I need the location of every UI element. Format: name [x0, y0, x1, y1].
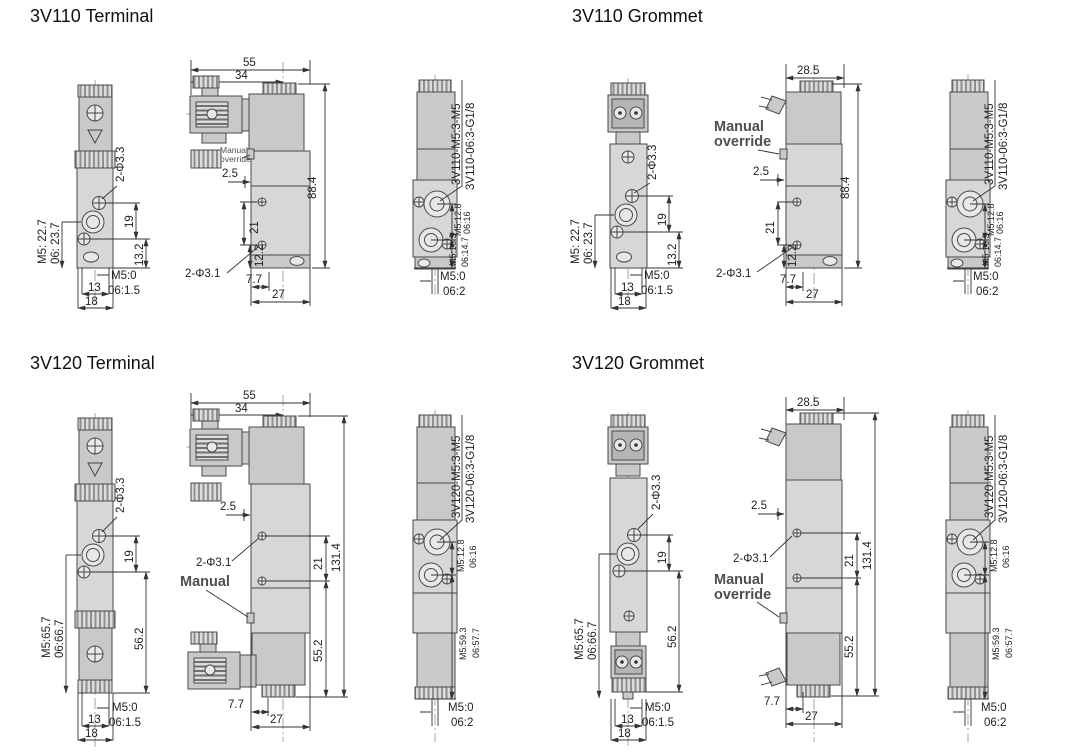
manual-override-button	[780, 613, 787, 623]
end-view-3v110-terminal: 3V110-M5:3-M5 3V110-06:3-G1/8 M5:12.8 06…	[413, 75, 477, 298]
dim-131-4: 131.4	[331, 543, 343, 572]
dim-2-5: 2.5	[751, 500, 767, 512]
override-label-2: override	[714, 134, 771, 150]
override-label-1: Manual	[180, 574, 230, 590]
dim-27: 27	[270, 714, 283, 726]
section-3v120-grommet: 3V120 Grommet 2-Φ3.3 19 56.2 M5:65.7 06:…	[572, 353, 1014, 748]
dim-12-2: 12.2	[254, 245, 266, 267]
dim-side-06: 06: 23.7	[583, 222, 595, 264]
front-view-3v120-grommet: 2-Φ3.3 19 56.2 M5:65.7 06:66.7 M5:0 06:1…	[574, 412, 683, 748]
valve-body-side	[251, 484, 310, 633]
dim-7-7: 7.7	[228, 699, 244, 711]
dim-side-m5: M5:65.7	[41, 616, 53, 658]
dim-12-2: 12.2	[787, 245, 799, 267]
dim-34: 34	[235, 70, 248, 82]
dim-side-06: 06:66.7	[587, 622, 599, 660]
override-label-2: override	[220, 154, 251, 164]
dim-34: 34	[235, 403, 248, 415]
dim-13-2: 13.2	[134, 244, 146, 266]
section-title: 3V110 Grommet	[572, 6, 703, 26]
section-3v120-terminal: 3V120 Terminal 2-Φ3.3 19 56.2 M5:65.7 06…	[30, 353, 481, 748]
section-title: 3V120 Terminal	[30, 353, 155, 373]
dim-131-4: 131.4	[862, 541, 874, 570]
dim-27: 27	[272, 289, 285, 301]
dim-base-06: 06:1.5	[109, 717, 141, 729]
side-view-3v110-grommet: 28.5 Manual override 2.5 88.4 21 12.2 2-…	[714, 64, 862, 306]
model-m5: 3V120-M5:3-M5	[984, 436, 996, 518]
dim-55: 55	[243, 57, 256, 69]
end-view-3v110-grommet: 3V110-M5:3-M5 3V110-06:3-G1/8 M5:12.8 06…	[946, 75, 1010, 298]
dim-55-2: 55.2	[313, 640, 325, 662]
dim-base-06: 06:1.5	[641, 285, 673, 297]
front-view-3v110-grommet: 2-Φ3.3 19 13.2 M5: 22.7 06: 23.7 M5:0 06…	[570, 78, 683, 308]
dim-21: 21	[765, 221, 777, 234]
side-view-3v120-grommet: 28.5 2.5 2-Φ3.1 Manual override 21 55.2 …	[714, 395, 879, 742]
dim-p2b: 06:14.7	[993, 237, 1003, 267]
dim-19: 19	[657, 551, 669, 564]
dim-holes-side: 2-Φ3.1	[185, 268, 220, 280]
dim-21: 21	[249, 221, 261, 234]
override-label-2: override	[714, 587, 771, 603]
dim-holes-side: 2-Φ3.1	[196, 557, 231, 569]
dim-holes: 2-Φ3.3	[115, 147, 127, 182]
dim-p1b: 06:16	[462, 211, 472, 234]
dim-side-06: 06: 23.7	[50, 222, 62, 264]
dim-p2b: 06:14.7	[460, 237, 470, 267]
dim-p2b: 06:57.7	[1004, 628, 1014, 658]
model-06: 3V120-06:3-G1/8	[998, 435, 1010, 523]
dim-88-4: 88.4	[840, 176, 852, 199]
dim-base-m5: M5:0	[111, 270, 137, 282]
dim-7-7: 7.7	[764, 696, 780, 708]
dim-p2a: M5:59.3	[991, 627, 1001, 660]
section-title: 3V110 Terminal	[30, 6, 153, 26]
dim-base-m5: M5:0	[644, 270, 670, 282]
dim-18: 18	[85, 296, 98, 308]
dim-base-06: 06:1.5	[642, 717, 674, 729]
section-title: 3V120 Grommet	[572, 353, 704, 373]
dim-holes-side: 2-Φ3.1	[733, 553, 768, 565]
dim-p1a: M5:12.8	[989, 539, 999, 572]
model-06: 3V120-06:3-G1/8	[465, 435, 477, 523]
dim-holes: 2-Φ3.3	[651, 475, 663, 510]
dim-p1b: 06:16	[1001, 545, 1011, 568]
model-06: 3V110-06:3-G1/8	[465, 103, 477, 190]
dim-21: 21	[844, 554, 856, 567]
dim-holes: 2-Φ3.3	[647, 145, 659, 180]
dim-7-7: 7.7	[246, 274, 262, 286]
dim-56-2: 56.2	[134, 628, 146, 650]
dim-21: 21	[313, 557, 325, 570]
dim-13: 13	[88, 282, 101, 294]
dim-13: 13	[621, 282, 634, 294]
dim-2-5: 2.5	[220, 501, 236, 513]
dim-p1b: 06:16	[995, 211, 1005, 234]
dim-end-base-06: 06:2	[976, 286, 998, 298]
dim-28-5: 28.5	[797, 397, 819, 409]
model-m5: 3V120-M5:3-M5	[451, 436, 463, 518]
end-view-3v120-terminal: 3V120-M5:3-M5 3V120-06:3-G1/8 M5:12.8 06…	[413, 410, 481, 742]
dim-base-06: 06:1.5	[108, 285, 140, 297]
override-label-1: Manual	[714, 572, 764, 588]
valve-body-side	[786, 480, 842, 633]
dim-end-base-06: 06:2	[984, 717, 1006, 729]
dim-7-7: 7.7	[780, 274, 796, 286]
model-m5: 3V110-M5:3-M5	[451, 103, 463, 185]
dim-18: 18	[85, 728, 98, 740]
section-3v110-grommet: 3V110 Grommet 2-Φ3.3 19 13.2 M5: 22.7 06…	[570, 6, 1010, 308]
dim-88-4: 88.4	[307, 176, 319, 199]
dim-55: 55	[243, 390, 256, 402]
dim-side-m5: M5:65.7	[574, 618, 586, 660]
model-m5: 3V110-M5:3-M5	[984, 103, 996, 185]
dim-55-2: 55.2	[844, 636, 856, 658]
front-view-3v110-terminal: 2-Φ3.3 19 13.2 M5: 22.7 06: 23.7 M5:0 06…	[37, 80, 150, 308]
dim-27: 27	[805, 711, 818, 723]
side-view-3v110-terminal: 55 34 Manual override 2.5 88.4 21 12.2 2…	[185, 57, 330, 306]
dim-end-base-06: 06:2	[443, 286, 465, 298]
dim-end-base-m5: M5:0	[981, 702, 1007, 714]
model-06: 3V110-06:3-G1/8	[998, 103, 1010, 190]
dim-p2a: M5:16.3	[981, 233, 991, 266]
end-view-3v120-grommet: 3V120-M5:3-M5 3V120-06:3-G1/8 M5:12.8 06…	[946, 410, 1014, 742]
dim-base-m5: M5:0	[112, 702, 138, 714]
dim-side-m5: M5: 22.7	[37, 219, 49, 264]
dim-base-m5: M5:0	[645, 702, 671, 714]
dim-56-2: 56.2	[667, 626, 679, 648]
override-label-1: Manual	[714, 119, 764, 135]
technical-drawing: 3V110 Terminal 2-Φ3.3 19 13.2 M5: 22.7 0…	[0, 0, 1068, 752]
dim-18: 18	[618, 296, 631, 308]
dim-holes: 2-Φ3.3	[115, 478, 127, 513]
dim-19: 19	[124, 215, 136, 228]
dim-p2b: 06:57.7	[471, 628, 481, 658]
dim-holes-side: 2-Φ3.1	[716, 268, 751, 280]
dim-p1b: 06:16	[468, 545, 478, 568]
dim-13-2: 13.2	[667, 244, 679, 266]
dim-13: 13	[621, 714, 634, 726]
dim-19: 19	[124, 550, 136, 563]
dim-end-base-m5: M5:0	[973, 271, 999, 283]
dim-2-5: 2.5	[222, 168, 238, 180]
manual-override-button	[247, 613, 254, 623]
dim-19: 19	[657, 213, 669, 226]
dim-side-m5: M5: 22.7	[570, 219, 582, 264]
dim-end-base-06: 06:2	[451, 717, 473, 729]
dim-13: 13	[88, 714, 101, 726]
dim-p1a: M5:12.8	[456, 539, 466, 572]
dim-end-base-m5: M5:0	[440, 271, 466, 283]
valve-dimension-sheet: 3V110 Terminal 2-Φ3.3 19 13.2 M5: 22.7 0…	[0, 0, 1068, 752]
section-3v110-terminal: 3V110 Terminal 2-Φ3.3 19 13.2 M5: 22.7 0…	[30, 6, 477, 308]
side-view-3v120-terminal: 55 34 2.5 2-Φ3.1 Manual 21 55.2 131.4	[180, 390, 348, 742]
front-view-3v120-terminal: 2-Φ3.3 19 56.2 M5:65.7 06:66.7 M5:0 06:1…	[41, 413, 150, 748]
dim-side-06: 06:66.7	[54, 620, 66, 658]
dim-end-base-m5: M5:0	[448, 702, 474, 714]
manual-override-button	[780, 149, 787, 159]
dim-p2a: M5:59.3	[458, 627, 468, 660]
dim-2-5: 2.5	[753, 166, 769, 178]
dim-18: 18	[618, 728, 631, 740]
dim-p2a: M5:16.3	[448, 233, 458, 266]
dim-27: 27	[806, 289, 819, 301]
dim-28-5: 28.5	[797, 65, 819, 77]
